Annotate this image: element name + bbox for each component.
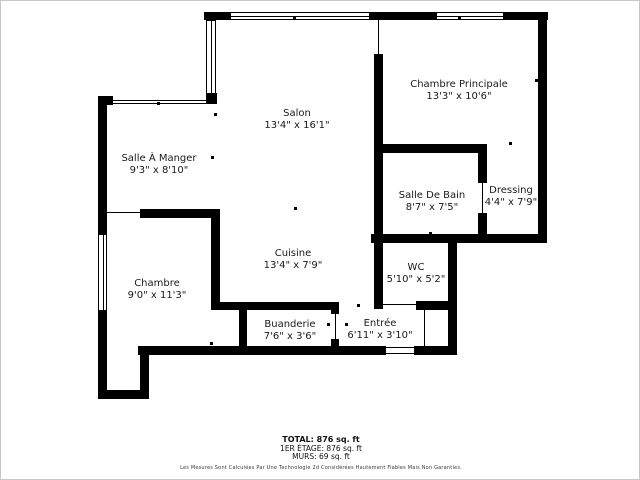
wall-segment: [538, 12, 547, 243]
door-opening-line: [482, 183, 483, 213]
wall-segment: [239, 302, 247, 355]
room-name-wc: WC: [387, 262, 446, 274]
dimension-tick: [429, 232, 432, 235]
wall-segment: [206, 93, 217, 104]
room-label-cuisine: Cuisine13'4" x 7'9": [264, 248, 323, 272]
dimension-tick: [294, 207, 297, 210]
door-opening-line: [386, 347, 414, 348]
wall-segment: [140, 209, 220, 218]
room-dimensions-chambre-principale: 13'3" x 10'6": [410, 91, 508, 103]
room-dimensions-wc: 5'10" x 5'2": [387, 274, 446, 286]
dimension-tick: [478, 214, 481, 217]
room-label-salle-de-bain: Salle De Bain8'7" x 7'5": [399, 190, 466, 214]
door-opening-line: [335, 314, 336, 339]
dimension-tick: [377, 79, 380, 82]
dimension-tick: [478, 180, 481, 183]
room-name-buanderie: Buanderie: [264, 319, 316, 331]
room-label-entree: Entrée6'11" x 3'10": [347, 318, 412, 342]
dimension-tick: [98, 156, 101, 159]
dimension-tick: [157, 102, 160, 105]
room-label-salon: Salon13'4" x 16'1": [264, 108, 329, 132]
wall-segment: [371, 234, 547, 243]
door-opening-line: [383, 304, 416, 305]
dimension-tick: [458, 17, 461, 20]
room-name-chambre-principale: Chambre Principale: [410, 79, 508, 91]
room-dimensions-salle-a-manger: 9'3" x 8'10": [121, 165, 196, 177]
dimension-tick: [211, 156, 214, 159]
total-area-text: TOTAL: 876 sq. ft: [1, 435, 640, 444]
door-opening-line: [424, 310, 425, 346]
dimension-tick: [210, 342, 213, 345]
room-dimensions-salle-de-bain: 8'7" x 7'5": [399, 202, 466, 214]
room-label-chambre-principale: Chambre Principale13'3" x 10'6": [410, 79, 508, 103]
room-dimensions-buanderie: 7'6" x 3'6": [264, 331, 316, 343]
dimension-tick: [415, 350, 418, 353]
room-name-dressing: Dressing: [485, 185, 537, 197]
room-dimensions-dressing: 4'4" x 7'9": [485, 197, 537, 209]
room-name-salle-de-bain: Salle De Bain: [399, 190, 466, 202]
window-icon: [230, 12, 370, 20]
room-dimensions-chambre: 9'0" x 11'3": [128, 290, 187, 302]
window-icon: [206, 20, 216, 94]
door-opening-line: [386, 353, 414, 354]
dimension-tick: [214, 113, 217, 116]
room-name-cuisine: Cuisine: [264, 248, 323, 260]
dimension-tick: [293, 17, 296, 20]
door-opening-line: [378, 20, 379, 54]
dimension-tick: [98, 347, 101, 350]
door-opening-line: [414, 238, 446, 239]
room-label-buanderie: Buanderie7'6" x 3'6": [264, 319, 316, 343]
wall-segment: [478, 213, 487, 243]
wall-segment: [211, 209, 220, 310]
wall-segment: [211, 302, 338, 310]
room-name-chambre: Chambre: [128, 278, 187, 290]
dimension-tick: [157, 211, 160, 214]
room-dimensions-entree: 6'11" x 3'10": [347, 330, 412, 342]
wall-segment: [374, 54, 383, 309]
room-label-chambre: Chambre9'0" x 11'3": [128, 278, 187, 302]
room-name-salle-a-manger: Salle À Manger: [121, 153, 196, 165]
room-name-entree: Entrée: [347, 318, 412, 330]
wall-segment: [331, 302, 339, 314]
floor-plan: Salon13'4" x 16'1"Salle À Manger9'3" x 8…: [1, 1, 639, 479]
wall-segment: [416, 301, 449, 310]
dimension-tick: [380, 350, 383, 353]
room-dimensions-cuisine: 13'4" x 7'9": [264, 260, 323, 272]
wall-segment: [448, 234, 457, 355]
window-icon: [98, 234, 107, 311]
dimension-tick: [535, 79, 538, 82]
dimension-tick: [357, 304, 360, 307]
dimension-tick: [509, 142, 512, 145]
room-label-salle-a-manger: Salle À Manger9'3" x 8'10": [121, 153, 196, 177]
wall-segment: [331, 339, 339, 355]
disclaimer-text: Les Mesures Sont Calculées Par Une Techn…: [1, 465, 640, 471]
wall-segment: [478, 144, 487, 183]
dimension-tick: [327, 323, 330, 326]
wall-segment: [374, 144, 486, 153]
room-label-dressing: Dressing4'4" x 7'9": [485, 185, 537, 209]
room-label-wc: WC5'10" x 5'2": [387, 262, 446, 286]
dimension-tick: [417, 301, 420, 304]
door-opening-line: [107, 100, 207, 101]
floorplan-image: Salon13'4" x 16'1"Salle À Manger9'3" x 8…: [0, 0, 640, 480]
window-icon: [436, 12, 504, 20]
walls-area-text: MURS: 69 sq. ft: [1, 452, 640, 461]
wall-segment: [98, 390, 149, 399]
room-dimensions-salon: 13'4" x 16'1": [264, 120, 329, 132]
room-name-salon: Salon: [264, 108, 329, 120]
door-opening-line: [107, 212, 141, 213]
